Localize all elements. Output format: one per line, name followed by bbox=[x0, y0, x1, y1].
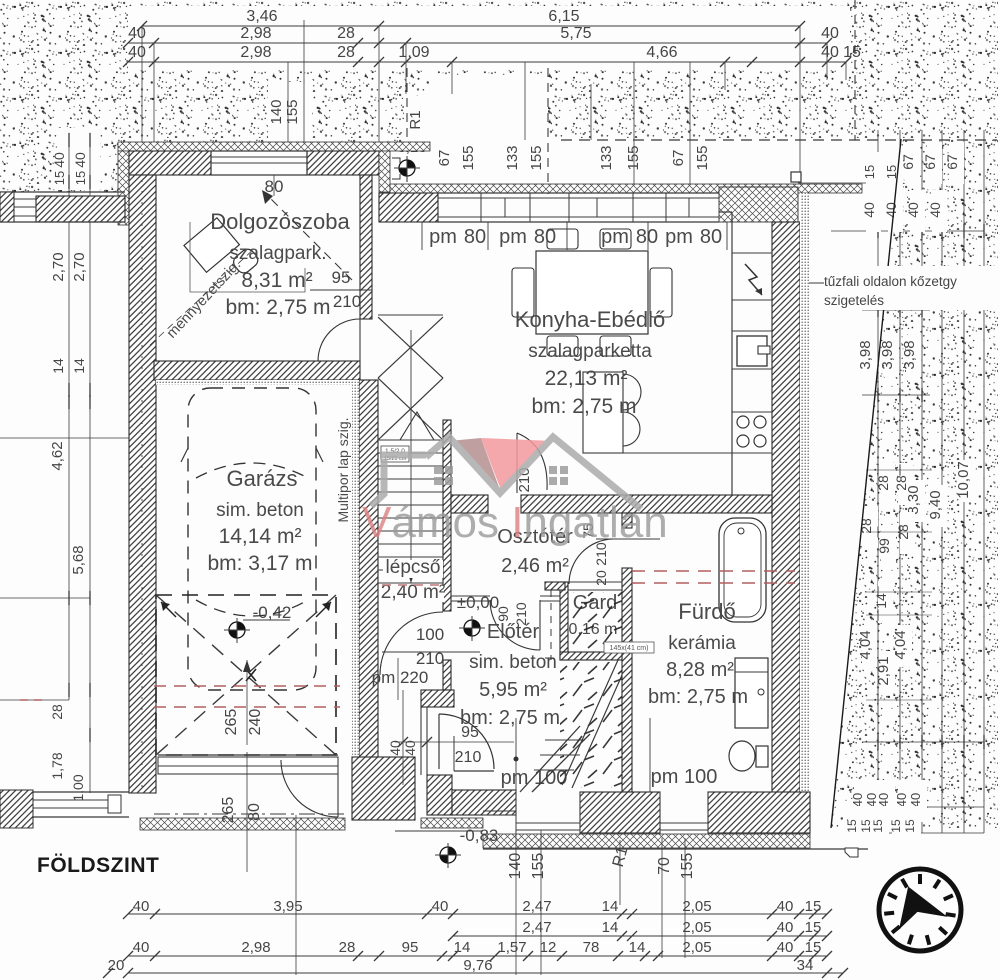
svg-text:15: 15 bbox=[871, 819, 885, 833]
svg-text:140: 140 bbox=[507, 853, 524, 880]
svg-text:1,09: 1,09 bbox=[398, 44, 429, 61]
svg-text:Dolgozószoba: Dolgozószoba bbox=[210, 209, 350, 234]
svg-text:20: 20 bbox=[593, 570, 609, 586]
svg-text:15: 15 bbox=[805, 919, 822, 936]
svg-text:1,78: 1,78 bbox=[49, 752, 65, 779]
svg-text:14,14 m²: 14,14 m² bbox=[219, 525, 302, 548]
svg-text:pm: pm bbox=[499, 226, 527, 248]
svg-text:bm: 2,75 m: bm: 2,75 m bbox=[531, 395, 636, 418]
svg-text:40: 40 bbox=[777, 939, 794, 956]
svg-text:40: 40 bbox=[387, 740, 403, 756]
svg-text:40: 40 bbox=[128, 44, 146, 61]
svg-text:80: 80 bbox=[700, 226, 722, 248]
svg-text:40: 40 bbox=[850, 793, 865, 807]
svg-text:15: 15 bbox=[903, 819, 917, 833]
svg-text:15: 15 bbox=[862, 165, 877, 179]
svg-text:5,75: 5,75 bbox=[560, 25, 591, 42]
svg-text:lépcső: lépcső bbox=[386, 557, 441, 578]
svg-text:210: 210 bbox=[416, 649, 444, 668]
svg-text:2,47: 2,47 bbox=[522, 898, 551, 915]
svg-text:4,04: 4,04 bbox=[857, 630, 874, 659]
svg-text:28: 28 bbox=[49, 704, 65, 720]
svg-text:40: 40 bbox=[894, 793, 909, 807]
svg-text:6,15: 6,15 bbox=[548, 8, 579, 25]
svg-text:pm: pm bbox=[601, 226, 629, 248]
svg-text:15: 15 bbox=[889, 819, 903, 833]
svg-text:14: 14 bbox=[71, 358, 87, 374]
svg-text:1,00: 1,00 bbox=[70, 774, 86, 801]
svg-text:14: 14 bbox=[629, 939, 646, 956]
svg-text:2,98: 2,98 bbox=[240, 44, 271, 61]
svg-text:15: 15 bbox=[805, 939, 822, 956]
svg-text:pm 100: pm 100 bbox=[651, 766, 718, 788]
svg-text:3,46: 3,46 bbox=[246, 8, 277, 25]
svg-text:szalagparketta: szalagparketta bbox=[528, 341, 652, 362]
svg-text:145x(41 cm): 145x(41 cm) bbox=[610, 645, 649, 652]
svg-text:40: 40 bbox=[908, 793, 923, 807]
svg-text:4,62: 4,62 bbox=[49, 441, 66, 470]
svg-text:9,40: 9,40 bbox=[927, 490, 944, 519]
svg-text:28: 28 bbox=[858, 518, 874, 534]
svg-text:Garázs: Garázs bbox=[227, 466, 298, 491]
svg-text:2,47: 2,47 bbox=[522, 919, 551, 936]
svg-text:8,30: 8,30 bbox=[905, 485, 922, 514]
svg-text:70: 70 bbox=[656, 857, 673, 875]
svg-text:pm: pm bbox=[429, 226, 457, 248]
svg-text:155: 155 bbox=[694, 145, 711, 170]
svg-text:2,05: 2,05 bbox=[682, 919, 711, 936]
svg-text:40: 40 bbox=[876, 793, 891, 807]
svg-text:2,70: 2,70 bbox=[50, 252, 67, 281]
svg-text:9,76: 9,76 bbox=[463, 957, 492, 974]
svg-text:80: 80 bbox=[534, 226, 556, 248]
svg-text:8,31 m²: 8,31 m² bbox=[241, 269, 312, 292]
svg-text:Vámos Ingatlan: Vámos Ingatlan bbox=[362, 498, 668, 547]
svg-text:szalagpark.: szalagpark. bbox=[229, 243, 326, 264]
svg-text:67: 67 bbox=[944, 154, 960, 170]
svg-text:67: 67 bbox=[436, 150, 453, 167]
svg-text:3,98: 3,98 bbox=[857, 340, 874, 369]
svg-text:15: 15 bbox=[805, 898, 822, 915]
svg-text:28: 28 bbox=[337, 25, 355, 42]
svg-text:bm: 2,75 m: bm: 2,75 m bbox=[648, 686, 748, 708]
svg-text:67: 67 bbox=[900, 154, 916, 170]
svg-text:R1: R1 bbox=[407, 110, 424, 129]
svg-text:80: 80 bbox=[636, 226, 658, 248]
svg-text:67: 67 bbox=[922, 154, 938, 170]
svg-text:kerámia: kerámia bbox=[668, 633, 736, 654]
svg-text:Konyha-Ebédlő: Konyha-Ebédlő bbox=[515, 307, 665, 332]
svg-text:28: 28 bbox=[337, 44, 355, 61]
svg-text:pm 220: pm 220 bbox=[372, 668, 429, 687]
svg-text:15: 15 bbox=[73, 171, 88, 185]
svg-text:40: 40 bbox=[821, 25, 839, 42]
svg-text:40: 40 bbox=[927, 202, 943, 218]
svg-text:5,95 m²: 5,95 m² bbox=[479, 679, 547, 701]
svg-text:szigetelés: szigetelés bbox=[824, 293, 884, 308]
svg-text:bm: 3,17 m: bm: 3,17 m bbox=[207, 552, 312, 575]
svg-text:12: 12 bbox=[540, 939, 557, 956]
svg-text:265: 265 bbox=[223, 709, 240, 736]
svg-text:14: 14 bbox=[873, 593, 889, 609]
svg-text:34: 34 bbox=[797, 957, 814, 974]
svg-text:155: 155 bbox=[284, 99, 301, 124]
svg-text:3,98: 3,98 bbox=[879, 340, 896, 369]
svg-text:2,98: 2,98 bbox=[241, 939, 270, 956]
svg-text:10,07: 10,07 bbox=[955, 461, 972, 499]
svg-text:15: 15 bbox=[845, 819, 859, 833]
svg-text:4,66: 4,66 bbox=[646, 44, 677, 61]
svg-text:265: 265 bbox=[220, 797, 237, 824]
svg-text:40: 40 bbox=[883, 202, 899, 218]
svg-text:2,98: 2,98 bbox=[240, 25, 271, 42]
svg-text:100: 100 bbox=[416, 625, 444, 644]
svg-text:5,68: 5,68 bbox=[70, 545, 87, 574]
svg-text:133: 133 bbox=[598, 145, 615, 170]
svg-text:240: 240 bbox=[247, 709, 264, 736]
svg-text:2,46 m²: 2,46 m² bbox=[501, 555, 569, 577]
svg-text:28: 28 bbox=[875, 475, 891, 491]
svg-text:40: 40 bbox=[432, 898, 449, 915]
svg-text:40: 40 bbox=[861, 202, 877, 218]
svg-text:22,13 m²: 22,13 m² bbox=[545, 367, 628, 390]
svg-text:2,91: 2,91 bbox=[875, 656, 892, 685]
svg-text:155: 155 bbox=[530, 853, 547, 880]
svg-text:Előtér: Előtér bbox=[487, 621, 540, 643]
svg-text:-0,42: -0,42 bbox=[253, 603, 292, 622]
svg-text:FÖLDSZINT: FÖLDSZINT bbox=[37, 854, 159, 877]
svg-text:40: 40 bbox=[128, 25, 146, 42]
svg-text:133: 133 bbox=[504, 145, 521, 170]
svg-text:80: 80 bbox=[464, 226, 486, 248]
svg-text:155: 155 bbox=[460, 145, 477, 170]
svg-text:40: 40 bbox=[402, 740, 418, 756]
svg-text:sim. beton: sim. beton bbox=[469, 652, 557, 673]
svg-text:-0,83: -0,83 bbox=[460, 826, 499, 845]
svg-text:80: 80 bbox=[246, 803, 263, 821]
svg-text:155: 155 bbox=[679, 853, 696, 880]
svg-text:40: 40 bbox=[777, 919, 794, 936]
svg-text:8,28 m²: 8,28 m² bbox=[666, 659, 734, 681]
svg-text:bm: 2,75 m: bm: 2,75 m bbox=[225, 296, 330, 319]
svg-text:155: 155 bbox=[625, 145, 642, 170]
svg-text:78: 78 bbox=[583, 939, 600, 956]
svg-text:40: 40 bbox=[821, 44, 839, 61]
svg-text:40: 40 bbox=[133, 898, 150, 915]
svg-text:14: 14 bbox=[602, 919, 619, 936]
svg-text:sim. beton: sim. beton bbox=[216, 500, 304, 521]
svg-text:3,98: 3,98 bbox=[901, 340, 918, 369]
svg-text:tűzfali oldalon kőzetgy: tűzfali oldalon kőzetgy bbox=[824, 274, 957, 289]
svg-text:pm: pm bbox=[665, 226, 693, 248]
svg-text:40: 40 bbox=[133, 939, 150, 956]
svg-text:210: 210 bbox=[333, 292, 361, 311]
svg-text:95: 95 bbox=[461, 724, 479, 741]
svg-text:1,57: 1,57 bbox=[497, 939, 526, 956]
svg-text:3,95: 3,95 bbox=[273, 898, 302, 915]
svg-text:±0,00: ±0,00 bbox=[457, 593, 499, 612]
svg-text:67: 67 bbox=[670, 150, 687, 167]
svg-text:99: 99 bbox=[876, 538, 892, 554]
svg-text:40: 40 bbox=[51, 152, 67, 168]
svg-text:2,70: 2,70 bbox=[71, 252, 88, 281]
svg-text:28: 28 bbox=[339, 939, 356, 956]
svg-text:Multipor lap szig.: Multipor lap szig. bbox=[335, 417, 351, 522]
svg-text:40: 40 bbox=[777, 898, 794, 915]
svg-text:2,05: 2,05 bbox=[682, 898, 711, 915]
svg-text:14: 14 bbox=[50, 358, 66, 374]
svg-text:210: 210 bbox=[455, 749, 482, 766]
svg-text:155: 155 bbox=[528, 145, 545, 170]
svg-text:14: 14 bbox=[602, 898, 619, 915]
svg-text:15: 15 bbox=[843, 44, 861, 61]
svg-text:15: 15 bbox=[52, 171, 67, 185]
svg-text:95: 95 bbox=[402, 939, 419, 956]
svg-text:14: 14 bbox=[454, 939, 471, 956]
svg-text:95: 95 bbox=[332, 268, 351, 287]
svg-text:140: 140 bbox=[268, 99, 285, 124]
svg-text:40: 40 bbox=[905, 202, 921, 218]
svg-text:Fürdő: Fürdő bbox=[678, 599, 735, 624]
svg-text:40: 40 bbox=[72, 152, 88, 168]
svg-text:2,05: 2,05 bbox=[682, 939, 711, 956]
